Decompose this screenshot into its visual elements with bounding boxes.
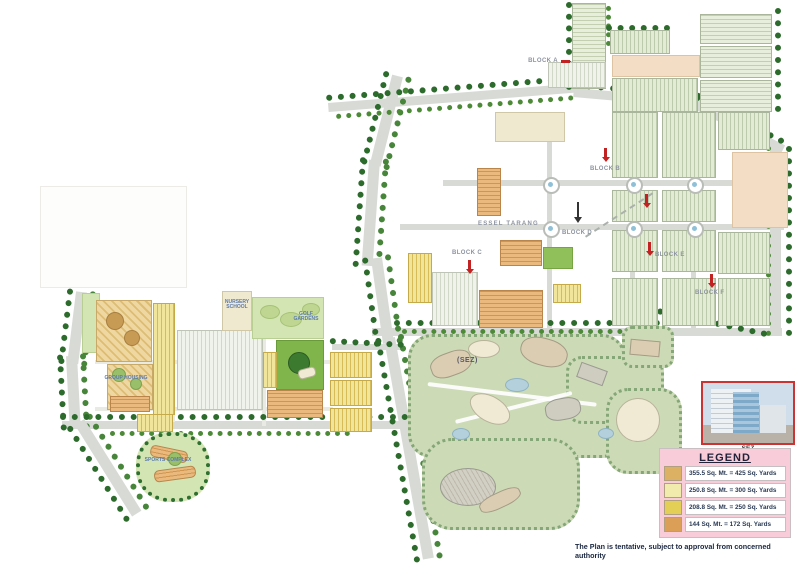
photo-glass-tower: [733, 392, 759, 433]
pond: [505, 378, 529, 392]
legend-swatch: [664, 466, 682, 481]
plot-block-yellow: [330, 352, 372, 378]
block-marker: [710, 274, 713, 283]
golf-mound: [260, 305, 280, 319]
tree-row: [775, 8, 781, 112]
plot-block: [432, 272, 478, 326]
legend-item-label: 208.8 Sq. Mt. = 250 Sq. Yards: [685, 500, 786, 515]
legend-item: 208.8 Sq. Mt. = 250 Sq. Yards: [664, 500, 786, 515]
legend-item-label: 355.5 Sq. Mt. = 425 Sq. Yards: [685, 466, 786, 481]
block-label: BLOCK C: [452, 250, 482, 256]
sez-area-label: (SEZ): [457, 357, 478, 364]
plot-block-yellow: [330, 408, 372, 432]
legend-item: 250.8 Sq. Mt. = 300 Sq. Yards: [664, 483, 786, 498]
facility-block: [495, 112, 565, 142]
master-plan-map: (SEZ) BLOCK A BLOCK B BLOCK C BLOCK D BL…: [0, 0, 800, 563]
legend-item-label: 144 Sq. Mt. = 172 Sq. Yards: [685, 517, 786, 532]
block-marker: [648, 242, 651, 251]
roundabout: [626, 177, 643, 194]
landscape-mound: [106, 312, 124, 330]
commercial-block: [612, 55, 700, 77]
sez-photo: [701, 381, 795, 445]
plot-block-yellow: [553, 284, 581, 303]
park-block: [543, 247, 573, 269]
block-label: BLOCK E: [655, 252, 685, 258]
plot-block-yellow: [330, 380, 372, 406]
plot-block: [718, 232, 770, 274]
plot-block-orange: [479, 290, 543, 328]
roundabout: [687, 177, 704, 194]
plot-block-yellow: [408, 253, 432, 303]
roundabout: [687, 221, 704, 238]
legend-swatch: [664, 500, 682, 515]
block-label: BLOCK F: [695, 290, 724, 296]
legend-item: 144 Sq. Mt. = 172 Sq. Yards: [664, 517, 786, 532]
boulevard-segment-3: [371, 257, 394, 344]
plot-block-orange: [267, 390, 323, 418]
plot-block-yellow: [263, 352, 277, 388]
legend-swatch: [664, 483, 682, 498]
area-label: SPORTS COMPLEX: [142, 458, 194, 463]
legend-title: LEGEND: [664, 452, 786, 464]
landscape-mound: [124, 330, 140, 346]
block-marker: [604, 148, 607, 157]
block-marker: [561, 60, 570, 63]
plot-block: [700, 80, 772, 112]
block-marker: [468, 260, 471, 269]
plot-block: [718, 112, 770, 150]
sez-building: [629, 339, 660, 358]
plot-block: [610, 30, 670, 54]
commercial-tower-block: [477, 168, 501, 216]
boulevard-segment-2: [362, 160, 380, 267]
photo-building-wing: [759, 405, 786, 433]
legend: LEGEND 355.5 Sq. Mt. = 425 Sq. Yards 250…: [659, 448, 791, 538]
roundabout: [543, 221, 560, 238]
plot-block: [662, 112, 716, 178]
plot-block: [700, 14, 772, 44]
plot-block-yellow: [137, 414, 173, 432]
road-label: ESSEL TARANG: [478, 221, 539, 227]
block-marker: [577, 202, 579, 217]
block-label: BLOCK D: [562, 230, 592, 236]
legend-item-label: 250.8 Sq. Mt. = 300 Sq. Yards: [685, 483, 786, 498]
plot-block: [612, 78, 698, 112]
housing-row: [110, 396, 150, 412]
sports-complex: [136, 432, 210, 502]
block-label: BLOCK A: [526, 58, 558, 64]
block-marker: [645, 194, 648, 203]
area-label: GROUP HOUSING: [104, 376, 148, 381]
plot-grid: [177, 330, 263, 410]
block-label: BLOCK B: [590, 166, 620, 172]
disclaimer-text: The Plan is tentative, subject to approv…: [575, 542, 797, 560]
plot-block: [662, 190, 716, 222]
sez-building: [616, 398, 660, 442]
plot-block: [612, 278, 658, 326]
legend-item: 355.5 Sq. Mt. = 425 Sq. Yards: [664, 466, 786, 481]
group-housing-block: [96, 300, 152, 362]
plot-block-orange: [500, 240, 542, 266]
facility-block: [222, 291, 252, 331]
plot-block: [662, 230, 716, 272]
sez-building: [468, 340, 500, 358]
area-label: GOLF GARDENS: [286, 312, 326, 322]
plot-block: [548, 62, 606, 88]
area-label: NURSERY SCHOOL: [216, 300, 258, 310]
plot-block: [700, 46, 772, 78]
watermark-box: [40, 186, 187, 288]
commercial-block: [732, 152, 788, 228]
roundabout: [626, 221, 643, 238]
roundabout: [543, 177, 560, 194]
pond: [452, 428, 470, 440]
plot-block: [718, 278, 770, 326]
plot-block-yellow: [153, 303, 175, 415]
legend-swatch: [664, 517, 682, 532]
pond: [598, 428, 614, 439]
